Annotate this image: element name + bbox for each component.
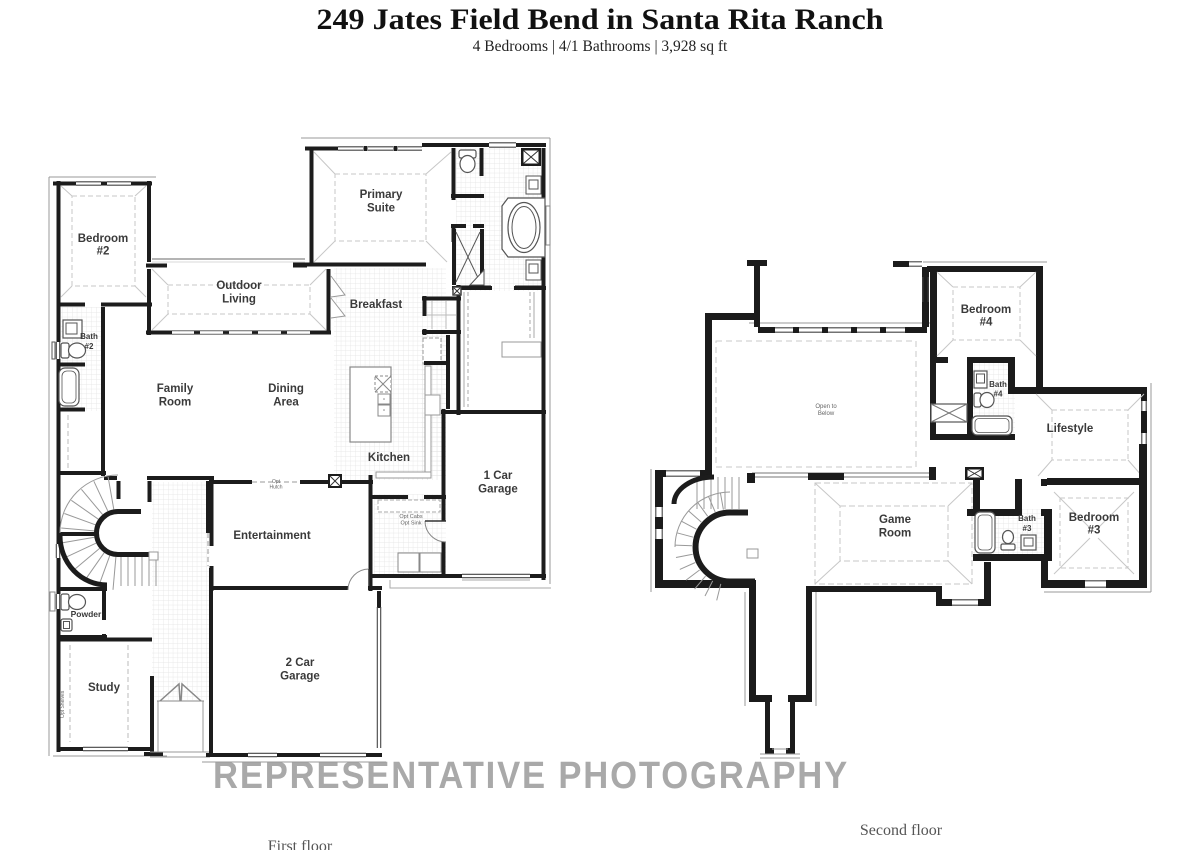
svg-text:#2: #2 xyxy=(85,342,94,351)
svg-text:#3: #3 xyxy=(1023,524,1032,533)
svg-text:249 Jates Field Bend in Santa: 249 Jates Field Bend in Santa Rita Ranch xyxy=(317,3,884,36)
svg-text:Hutch: Hutch xyxy=(269,485,282,491)
svg-text:Opt Cabs: Opt Cabs xyxy=(399,514,422,520)
svg-text:2 Car: 2 Car xyxy=(286,657,315,669)
svg-text:REPRESENTATIVE PHOTOGRAPHY: REPRESENTATIVE PHOTOGRAPHY xyxy=(213,755,849,797)
svg-text:Opt Shelves: Opt Shelves xyxy=(60,690,66,718)
svg-text:Bath: Bath xyxy=(80,332,98,341)
svg-text:Open to: Open to xyxy=(815,404,837,410)
svg-text:Second floor: Second floor xyxy=(860,822,943,839)
svg-text:Family: Family xyxy=(157,383,194,395)
svg-text:Outdoor: Outdoor xyxy=(216,280,262,292)
svg-text:Garage: Garage xyxy=(478,484,518,496)
svg-text:Area: Area xyxy=(273,397,299,409)
svg-text:Bath: Bath xyxy=(1018,514,1036,523)
svg-text:#3: #3 xyxy=(1088,525,1101,537)
svg-text:Entertainment: Entertainment xyxy=(233,530,310,542)
svg-text:Bedroom: Bedroom xyxy=(78,233,128,245)
svg-text:Dining: Dining xyxy=(268,383,304,395)
svg-text:Below: Below xyxy=(818,411,835,417)
svg-text:4 Bedrooms | 4/1 Bathrooms | 3: 4 Bedrooms | 4/1 Bathrooms | 3,928 sq ft xyxy=(473,38,728,55)
svg-text:First floor: First floor xyxy=(268,838,333,850)
svg-text:Game: Game xyxy=(879,514,911,526)
svg-text:Primary: Primary xyxy=(360,189,403,201)
svg-text:Powder: Powder xyxy=(71,609,102,619)
svg-text:Bedroom: Bedroom xyxy=(961,304,1011,316)
svg-text:Lifestyle: Lifestyle xyxy=(1047,423,1094,435)
svg-text:Opt Sink: Opt Sink xyxy=(400,521,421,527)
svg-text:Bedroom: Bedroom xyxy=(1069,512,1119,524)
svg-text:Living: Living xyxy=(222,294,256,306)
svg-text:Breakfast: Breakfast xyxy=(350,299,403,311)
svg-text:Kitchen: Kitchen xyxy=(368,452,410,464)
svg-text:Bath: Bath xyxy=(989,380,1007,389)
svg-text:Study: Study xyxy=(88,682,121,694)
svg-text:Room: Room xyxy=(159,397,192,409)
svg-text:1 Car: 1 Car xyxy=(484,470,513,482)
svg-text:Suite: Suite xyxy=(367,203,395,215)
svg-text:Room: Room xyxy=(879,528,912,540)
svg-text:#4: #4 xyxy=(980,317,993,329)
svg-text:#4: #4 xyxy=(994,390,1003,399)
svg-text:Garage: Garage xyxy=(280,671,320,683)
svg-text:#2: #2 xyxy=(97,246,110,258)
